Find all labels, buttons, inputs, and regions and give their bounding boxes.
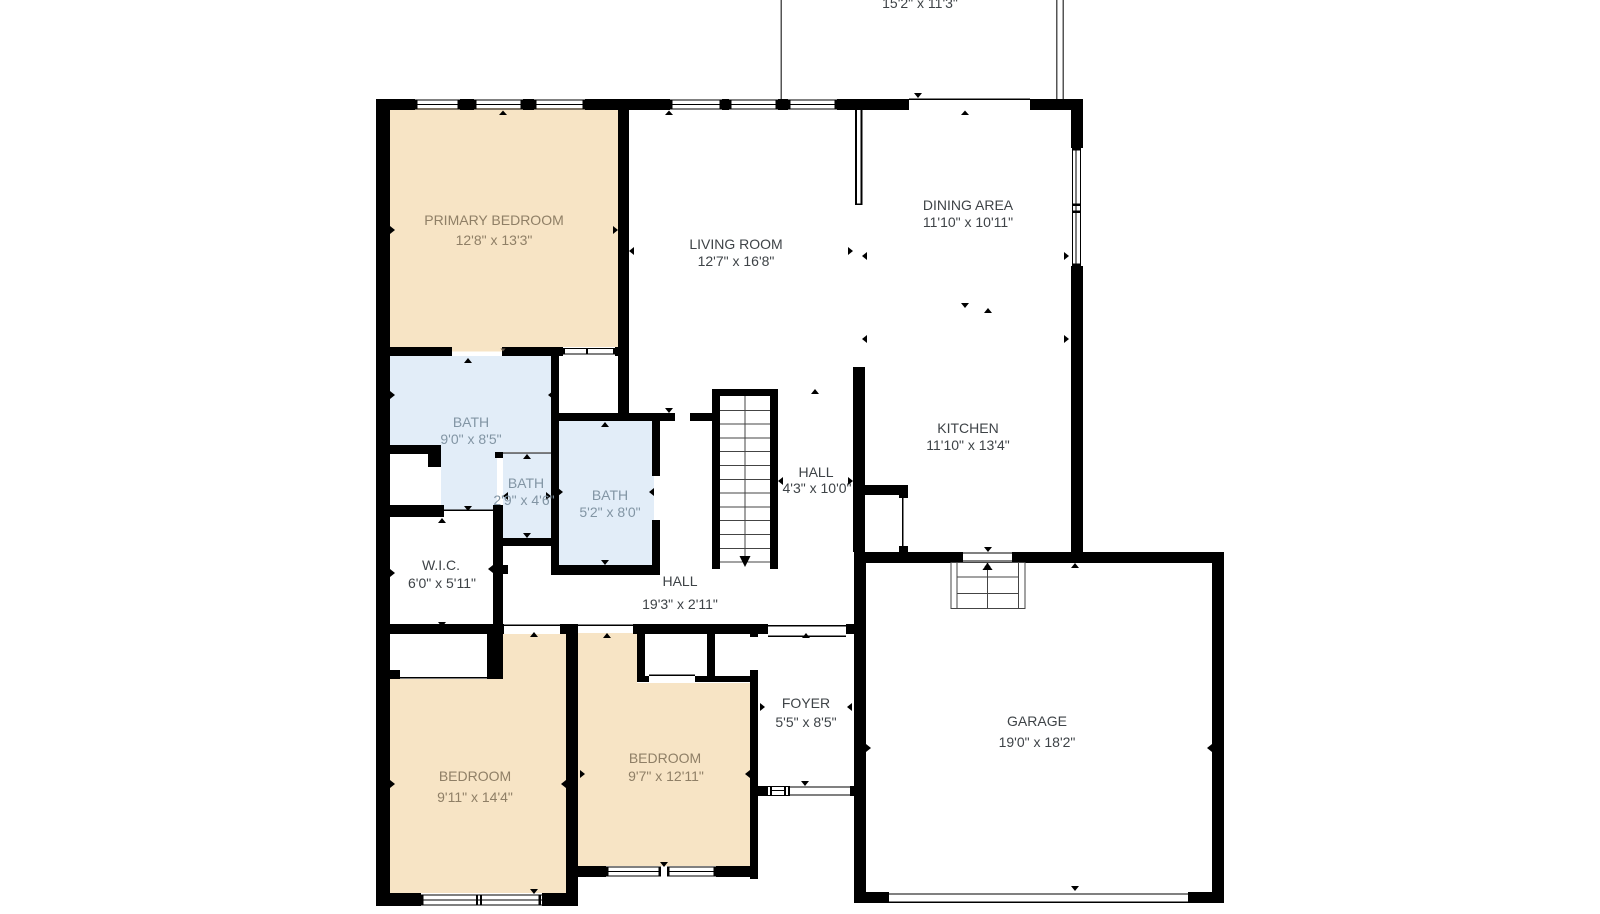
svg-text:BATH: BATH (453, 414, 489, 430)
svg-text:HALL: HALL (662, 573, 697, 589)
svg-text:9'0" x 8'5": 9'0" x 8'5" (440, 431, 501, 447)
svg-text:9'11" x 14'4": 9'11" x 14'4" (437, 789, 513, 805)
svg-text:11'10" x 13'4": 11'10" x 13'4" (926, 437, 1010, 453)
svg-text:5'2" x 8'0": 5'2" x 8'0" (579, 504, 640, 520)
svg-text:12'8" x 13'3": 12'8" x 13'3" (456, 232, 533, 248)
svg-text:4'3" x 10'0": 4'3" x 10'0" (783, 480, 852, 496)
svg-text:11'10" x 10'11": 11'10" x 10'11" (923, 214, 1013, 230)
svg-text:W.I.C.: W.I.C. (422, 557, 460, 573)
svg-text:DINING AREA: DINING AREA (923, 197, 1014, 213)
svg-text:15'2" x 11'3": 15'2" x 11'3" (882, 0, 958, 11)
svg-text:9'7" x 12'11": 9'7" x 12'11" (628, 768, 704, 784)
svg-text:2'9" x 4'6": 2'9" x 4'6" (493, 492, 554, 508)
svg-text:6'0" x 5'11": 6'0" x 5'11" (408, 575, 476, 591)
svg-text:KITCHEN: KITCHEN (937, 420, 998, 436)
svg-text:19'0" x 18'2": 19'0" x 18'2" (999, 734, 1076, 750)
svg-text:FOYER: FOYER (782, 695, 830, 711)
svg-text:19'3" x 2'11": 19'3" x 2'11" (642, 596, 718, 612)
svg-text:LIVING ROOM: LIVING ROOM (689, 236, 782, 252)
svg-text:BEDROOM: BEDROOM (439, 768, 511, 784)
svg-text:PRIMARY BEDROOM: PRIMARY BEDROOM (424, 212, 564, 228)
svg-text:HALL: HALL (798, 464, 833, 480)
svg-text:BEDROOM: BEDROOM (629, 750, 701, 766)
svg-text:GARAGE: GARAGE (1007, 713, 1067, 729)
svg-text:12'7" x 16'8": 12'7" x 16'8" (698, 253, 775, 269)
svg-text:BATH: BATH (508, 475, 544, 491)
svg-text:BATH: BATH (592, 487, 628, 503)
svg-text:5'5" x 8'5": 5'5" x 8'5" (775, 714, 836, 730)
